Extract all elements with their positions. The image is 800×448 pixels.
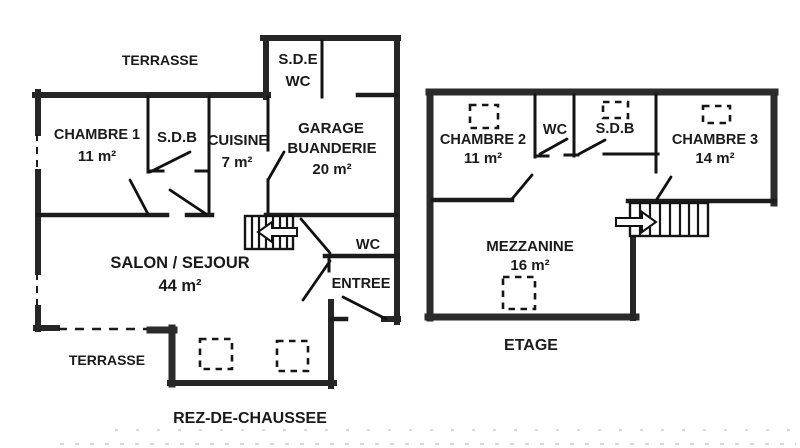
upper-floor-stairs (616, 203, 708, 236)
dashed-square-extension-2 (277, 341, 308, 371)
label-etage: ETAGE (504, 337, 558, 354)
label-sde: S.D.E (278, 51, 317, 68)
label-salon-area: 44 m² (158, 277, 202, 295)
door-sdb (579, 140, 605, 154)
door-chambre1 (130, 180, 148, 214)
label-chambre3-area: 14 m² (695, 150, 734, 167)
ground-floor-plan: TERRASSE CHAMBRE 1 11 m² S.D.B CUISINE 7… (35, 38, 398, 427)
floor-plan-drawing: TERRASSE CHAMBRE 1 11 m² S.D.B CUISINE 7… (0, 0, 800, 448)
label-mezzanine-area: 16 m² (510, 257, 549, 274)
label-mezzanine: MEZZANINE (486, 238, 574, 255)
dashed-square-mezzanine (503, 277, 535, 309)
label-wc-upper: WC (543, 122, 568, 138)
label-garage: GARAGE (298, 120, 364, 137)
label-chambre3: CHAMBRE 3 (672, 132, 758, 148)
ground-floor-labels: TERRASSE CHAMBRE 1 11 m² S.D.B CUISINE 7… (54, 51, 391, 427)
label-cuisine-area: 7 m² (222, 154, 253, 171)
door-salon-entree (303, 261, 330, 300)
label-rez-de-chaussee: REZ-DE-CHAUSSEE (173, 410, 327, 427)
ground-floor-extension-walls (150, 302, 346, 386)
label-cuisine: CUISINE (208, 132, 269, 149)
label-terrasse-top: TERRASSE (122, 52, 198, 68)
label-chambre2-area: 11 m² (464, 150, 502, 167)
label-sdb-upper: S.D.B (596, 121, 635, 137)
dashed-square-sdb (603, 102, 628, 118)
label-chambre2: CHAMBRE 2 (440, 132, 526, 148)
dashed-square-extension-1 (200, 339, 232, 369)
dashed-square-chambre3 (703, 106, 730, 123)
label-chambre1-area: 11 m² (78, 148, 116, 165)
door-wc (540, 139, 567, 154)
label-sde-wc: WC (286, 73, 311, 90)
label-entree: ENTREE (332, 276, 391, 292)
door-cuisine (170, 190, 206, 214)
floor-plan-page: TERRASSE CHAMBRE 1 11 m² S.D.B CUISINE 7… (0, 0, 800, 448)
label-garage-area: 20 m² (312, 161, 351, 178)
ground-floor-stairs (245, 216, 297, 249)
door-wc (301, 219, 330, 253)
label-wc-ground: WC (356, 237, 381, 253)
label-sdb: S.D.B (157, 129, 197, 146)
door-sdb (150, 152, 190, 172)
label-buanderie: BUANDERIE (287, 140, 376, 157)
door-chambre3 (657, 177, 671, 199)
scan-artifacts (60, 430, 796, 444)
door-chambre2 (512, 175, 532, 199)
label-chambre1: CHAMBRE 1 (54, 127, 140, 143)
upper-floor-plan: CHAMBRE 2 11 m² WC S.D.B CHAMBRE 3 14 m²… (428, 92, 775, 354)
door-front-entrance (343, 297, 386, 319)
door-garage (268, 152, 284, 180)
dashed-square-chambre2 (470, 105, 498, 128)
label-terrasse-bottom: TERRASSE (69, 352, 145, 368)
label-salon: SALON / SEJOUR (110, 254, 249, 272)
